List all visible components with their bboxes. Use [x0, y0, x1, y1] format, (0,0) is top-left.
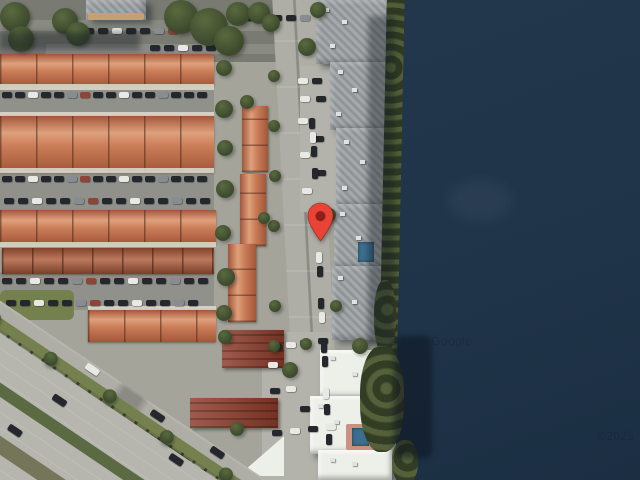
tree [226, 2, 250, 26]
walkway [0, 168, 214, 173]
parked-car [86, 278, 96, 284]
rooftop-unit [360, 160, 365, 164]
parked-car [323, 388, 329, 399]
tree [282, 362, 298, 378]
strip-mall-facade [88, 13, 144, 20]
parked-car [286, 342, 296, 348]
parked-car [308, 426, 318, 432]
parked-car [93, 176, 103, 182]
parked-car [146, 300, 156, 306]
parked-car [60, 198, 70, 204]
parked-car [106, 176, 116, 182]
parked-car [140, 28, 150, 34]
rooftop-unit [330, 458, 335, 462]
tree [268, 70, 280, 82]
parked-car [302, 188, 312, 194]
tree [310, 2, 326, 18]
parked-car [41, 92, 51, 98]
parked-car [100, 278, 110, 284]
parked-car [324, 404, 330, 415]
parked-car [312, 168, 318, 179]
building-shadow-on-water [394, 336, 432, 458]
parked-car [145, 176, 155, 182]
parked-car [54, 176, 64, 182]
rooftop-unit [352, 372, 357, 376]
tree [268, 340, 280, 352]
parked-car [32, 198, 42, 204]
townhouse-roof-row [0, 116, 214, 172]
parked-car [164, 45, 174, 51]
tree [230, 422, 244, 436]
parked-car [15, 176, 25, 182]
parked-car [72, 278, 82, 284]
parked-car [300, 96, 310, 102]
copyright-watermark-partial: ©2025 [597, 429, 635, 443]
parked-car [16, 278, 26, 284]
parked-car [20, 300, 30, 306]
townhouse-roof-row [0, 54, 214, 86]
parked-car [119, 176, 129, 182]
lake-water [396, 0, 640, 480]
pin-inner-dot [315, 211, 325, 221]
parked-car [130, 198, 140, 204]
parked-car [326, 434, 332, 445]
parked-car [34, 300, 44, 306]
parked-car [184, 176, 194, 182]
parked-car [298, 118, 308, 124]
parked-car [54, 92, 64, 98]
parked-car [46, 198, 56, 204]
walkway [0, 242, 216, 247]
tree [215, 225, 231, 241]
tree [216, 60, 232, 76]
parked-car [158, 198, 168, 204]
parked-car [128, 278, 138, 284]
parked-car [172, 198, 182, 204]
parked-car [118, 300, 128, 306]
tree [268, 220, 280, 232]
parked-car [119, 92, 129, 98]
tree [298, 38, 316, 56]
parked-car [80, 176, 90, 182]
tree [240, 95, 254, 109]
rooftop-unit [330, 44, 335, 48]
parked-car [286, 386, 296, 392]
parked-car [178, 45, 188, 51]
parked-car [171, 92, 181, 98]
parked-car [2, 92, 12, 98]
parked-car [106, 92, 116, 98]
parked-car [171, 176, 181, 182]
parked-car [30, 278, 40, 284]
rooftop-unit [352, 300, 357, 304]
location-pin-icon[interactable] [307, 202, 334, 242]
parked-car [88, 198, 98, 204]
parked-car [197, 176, 207, 182]
parked-car [48, 300, 58, 306]
parked-car [158, 176, 168, 182]
parked-car [156, 278, 166, 284]
parked-car [41, 176, 51, 182]
tree [216, 305, 232, 321]
parked-car [268, 362, 278, 368]
parked-car [170, 278, 180, 284]
parked-car [62, 300, 72, 306]
rooftop-unit [342, 20, 347, 24]
parked-car [102, 198, 112, 204]
parked-car [188, 300, 198, 306]
parked-car [132, 176, 142, 182]
tree [300, 338, 312, 350]
parked-car [116, 198, 126, 204]
townhouse-roof-row [88, 310, 216, 342]
rooftop-unit [344, 140, 349, 144]
tree [269, 300, 281, 312]
parked-car [311, 146, 317, 157]
rooftop-unit [338, 70, 343, 74]
tree [352, 338, 368, 354]
parked-car [318, 298, 324, 309]
parked-car [300, 15, 310, 21]
parked-car [310, 132, 316, 143]
parked-car [132, 92, 142, 98]
tree-shadow [0, 32, 140, 50]
parked-car [317, 266, 323, 277]
tree [269, 170, 281, 182]
townhouse-roof-row [0, 210, 216, 244]
tree [218, 330, 232, 344]
rooftop-unit [342, 186, 347, 190]
rooftop-unit [336, 112, 341, 116]
parked-car [2, 176, 12, 182]
rooftop-unit [330, 356, 335, 360]
parked-car [300, 406, 310, 412]
parked-car [150, 45, 160, 51]
parked-car [104, 300, 114, 306]
parked-car [67, 92, 77, 98]
parked-car [197, 92, 207, 98]
parked-car [312, 78, 322, 84]
water-highlight [448, 180, 512, 222]
parked-car [309, 118, 315, 129]
parked-car [142, 278, 152, 284]
parked-car [272, 430, 282, 436]
tree [217, 268, 235, 286]
pin-body [308, 203, 333, 241]
rooftop-unit [352, 88, 357, 92]
parked-car [80, 92, 90, 98]
rooftop-unit [356, 236, 361, 240]
parked-car [28, 176, 38, 182]
rooftop-unit [352, 462, 357, 466]
parked-car [15, 92, 25, 98]
townhouse-roof-row [2, 248, 214, 274]
parked-car [192, 45, 202, 51]
tree [215, 100, 233, 118]
tree [214, 26, 244, 56]
parked-car [186, 198, 196, 204]
parked-car [158, 92, 168, 98]
parked-car [286, 15, 296, 21]
parked-car [74, 198, 84, 204]
satellite-map-canvas[interactable]: ©2025 Google ©2025 [0, 0, 640, 480]
rooftop-unit [338, 276, 343, 280]
tree [330, 300, 342, 312]
parked-car [145, 92, 155, 98]
parked-car [44, 278, 54, 284]
tree [216, 180, 234, 198]
parked-car [90, 300, 100, 306]
parked-car [132, 300, 142, 306]
parked-car [76, 300, 86, 306]
parked-car [114, 278, 124, 284]
building-shadow [368, 16, 394, 346]
tree [262, 14, 280, 32]
rooftop-unit [340, 212, 345, 216]
tree [258, 212, 270, 224]
tree [217, 140, 233, 156]
apartment-roof [242, 106, 268, 172]
parked-car [290, 428, 300, 434]
parked-car [198, 278, 208, 284]
parked-car [154, 28, 164, 34]
parked-car [200, 198, 210, 204]
parked-car [184, 278, 194, 284]
parked-car [326, 424, 336, 430]
parked-car [4, 198, 14, 204]
walkway [0, 84, 214, 90]
parked-car [300, 152, 310, 158]
tree [268, 120, 280, 132]
parked-car [319, 312, 325, 323]
parked-car [93, 92, 103, 98]
parked-car [18, 198, 28, 204]
parked-car [160, 300, 170, 306]
apartment-roof [240, 174, 266, 246]
parked-car [316, 252, 322, 263]
google-attribution-watermark: ©2025 Google [390, 334, 472, 348]
parked-car [144, 198, 154, 204]
parked-car [174, 300, 184, 306]
parked-car [298, 78, 308, 84]
parked-car [316, 96, 326, 102]
parked-car [28, 92, 38, 98]
rooftop-unit [318, 404, 323, 408]
parked-car [67, 176, 77, 182]
parked-car [2, 278, 12, 284]
parked-car [270, 388, 280, 394]
parked-car [322, 356, 328, 367]
parked-car [321, 342, 327, 353]
parked-car [58, 278, 68, 284]
parked-car [184, 92, 194, 98]
